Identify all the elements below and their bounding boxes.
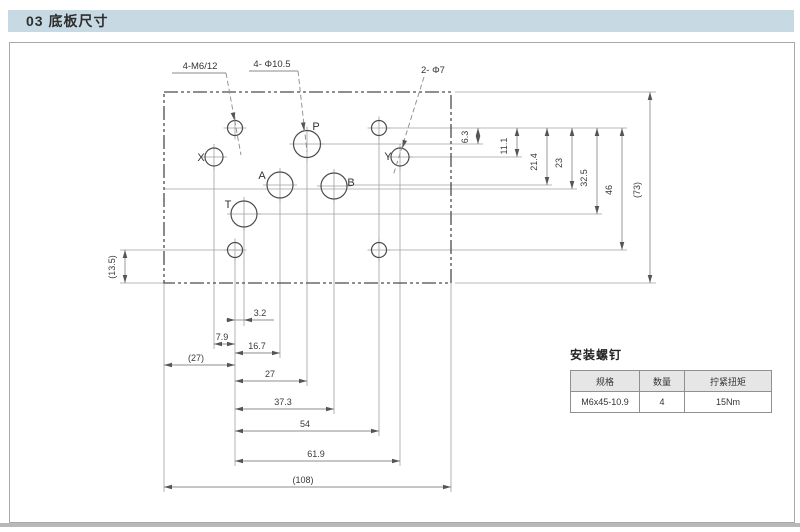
- mounting-screw-block: 安装螺钉 规格 数量 拧紧扭矩 M6x45-10.9 4 15Nm: [570, 346, 780, 413]
- col-header-torque: 拧紧扭矩: [685, 371, 772, 392]
- callout-arrow: [301, 122, 306, 130]
- dimension-text: 3.2: [254, 308, 267, 318]
- dimension-text: 11.1: [499, 138, 509, 155]
- dim-arrow: [123, 275, 128, 283]
- dim-arrow: [545, 128, 550, 136]
- callout-arrow: [231, 112, 237, 121]
- dimension-text: 23: [554, 158, 564, 168]
- dim-arrow: [515, 149, 520, 157]
- plate-outline: [164, 92, 451, 283]
- dim-arrow: [227, 318, 235, 323]
- dim-arrow: [595, 206, 600, 214]
- port-label-X: X: [197, 152, 205, 164]
- port-label-T: T: [225, 199, 232, 211]
- port-label-Y: Y: [384, 151, 392, 163]
- dim-arrow: [123, 250, 128, 258]
- base-plate-technical-drawing: 3.27.916.7(27)2737.35461.9(108)6.311.121…: [0, 0, 800, 532]
- screw-table-header-row: 规格 数量 拧紧扭矩: [571, 371, 772, 392]
- dimension-text: 54: [300, 419, 310, 429]
- footer-divider: [0, 523, 800, 527]
- callout-leader: [298, 71, 307, 152]
- dim-arrow: [570, 128, 575, 136]
- dim-arrow: [648, 275, 653, 283]
- dimension-text: (73): [632, 182, 642, 198]
- dimension-text: 16.7: [248, 341, 266, 351]
- cell-spec: M6x45-10.9: [571, 392, 640, 413]
- dim-arrow: [570, 181, 575, 189]
- dim-arrow: [235, 459, 243, 464]
- dim-arrow: [227, 363, 235, 368]
- dimension-text: 6.3: [460, 131, 470, 144]
- dimension-text: (13.5): [107, 255, 117, 279]
- dim-arrow: [235, 379, 243, 384]
- dim-arrow: [272, 351, 280, 356]
- dim-arrow: [244, 318, 252, 323]
- col-header-spec: 规格: [571, 371, 640, 392]
- dim-arrow: [214, 342, 222, 347]
- dimension-text: 37.3: [274, 397, 292, 407]
- callout-text: 4- Φ10.5: [253, 59, 290, 70]
- dim-arrow: [235, 351, 243, 356]
- dimension-text: (27): [188, 353, 204, 363]
- dim-arrow: [545, 177, 550, 185]
- col-header-qty: 数量: [640, 371, 685, 392]
- dim-arrow: [326, 407, 334, 412]
- cell-qty: 4: [640, 392, 685, 413]
- dim-arrow: [620, 242, 625, 250]
- cell-torque: 15Nm: [685, 392, 772, 413]
- dim-arrow: [515, 128, 520, 136]
- port-label-A: A: [258, 170, 266, 182]
- dim-arrow: [227, 342, 235, 347]
- dimension-text: 46: [604, 185, 614, 195]
- dim-arrow: [235, 407, 243, 412]
- port-label-P: P: [312, 121, 319, 133]
- dim-arrow: [476, 136, 481, 144]
- dim-arrow: [371, 429, 379, 434]
- dimension-text: 7.9: [216, 332, 229, 342]
- dimension-text: 27: [265, 369, 275, 379]
- dim-arrow: [476, 128, 481, 136]
- dim-arrow: [164, 363, 172, 368]
- callout-text: 2- Φ7: [421, 65, 445, 76]
- dim-arrow: [392, 459, 400, 464]
- dim-arrow: [595, 128, 600, 136]
- screw-table: 规格 数量 拧紧扭矩 M6x45-10.9 4 15Nm: [570, 370, 772, 413]
- page: 03 底板尺寸 3.27.916.7(27)2737.35461.9(108)6…: [0, 0, 800, 532]
- callout-text: 4-M6/12: [183, 61, 218, 72]
- dim-arrow: [235, 429, 243, 434]
- dimension-text: 61.9: [307, 449, 325, 459]
- dimension-text: 32.5: [579, 169, 589, 187]
- screw-table-row: M6x45-10.9 4 15Nm: [571, 392, 772, 413]
- dim-arrow: [443, 485, 451, 490]
- dim-arrow: [299, 379, 307, 384]
- dimension-text: (108): [292, 475, 313, 485]
- dim-arrow: [164, 485, 172, 490]
- screw-table-title: 安装螺钉: [570, 346, 780, 363]
- port-label-B: B: [347, 177, 354, 189]
- dimension-text: 21.4: [529, 153, 539, 171]
- dim-arrow: [620, 128, 625, 136]
- dim-arrow: [648, 92, 653, 100]
